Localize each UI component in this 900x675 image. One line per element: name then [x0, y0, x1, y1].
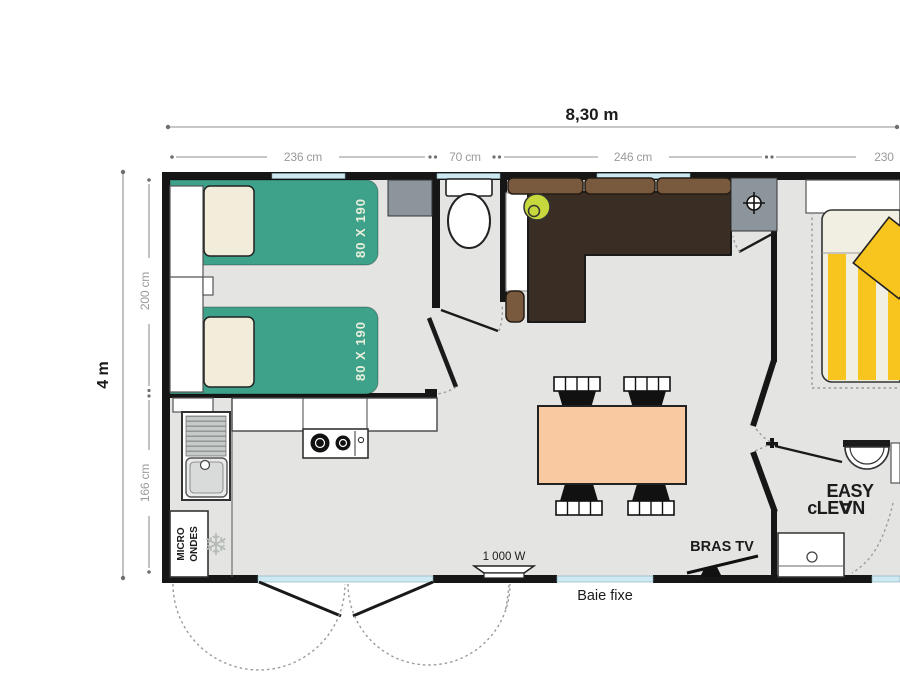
- kitchen-counter: [232, 398, 437, 431]
- dining-table: [538, 406, 686, 484]
- floorplan-page: 80 X 190 80 X 190: [0, 0, 900, 675]
- window-bathroom: [872, 576, 900, 582]
- pillow-1: [204, 186, 254, 256]
- dim-tick: [498, 155, 501, 158]
- easy-clean-logo-line2: cLE∀N: [807, 498, 864, 518]
- bedroom-cabinet: [388, 180, 432, 216]
- freezer-snowflake-icon: ❄: [203, 529, 228, 562]
- french-door-leaf-left: [259, 582, 341, 616]
- dim-label-166: 166 cm: [138, 464, 152, 502]
- dim-tick: [147, 394, 150, 397]
- wall-left: [162, 172, 170, 583]
- wall-bath-left: [771, 510, 777, 578]
- wall-bedroom-right: [432, 180, 440, 308]
- heater-dotted-line: [505, 585, 509, 612]
- door-jamb-bedroom: [425, 389, 437, 393]
- vanity-knob: [807, 552, 817, 562]
- dim-dot: [121, 170, 125, 174]
- sofa-cushion-3: [657, 178, 731, 194]
- window-baie-fixe: [557, 576, 653, 582]
- sofa-cushion-2: [585, 178, 655, 194]
- microwave-label-line2: ONDES: [189, 526, 200, 562]
- window-bedroom: [272, 174, 345, 179]
- wardrobe: [170, 186, 203, 392]
- dim-label-master: 230: [874, 150, 894, 164]
- baie-fixe-label: Baie fixe: [577, 588, 633, 604]
- dim-label-living: 246 cm: [614, 150, 652, 164]
- dim-tick: [765, 155, 768, 158]
- sofa-armrest: [506, 291, 524, 322]
- microwave-label-line1: MICRO: [176, 527, 187, 561]
- dim-tick: [147, 570, 151, 574]
- dim-label-wc: 70 cm: [449, 150, 481, 164]
- dim-tick: [428, 155, 431, 158]
- bed1-size-label: 80 X 190: [353, 198, 368, 258]
- sofa-cushion-1: [508, 178, 583, 194]
- dim-dot: [121, 576, 125, 580]
- window-french-door: [258, 576, 433, 582]
- total-width-label: 8,30 m: [566, 105, 619, 124]
- heater-base: [484, 573, 524, 578]
- wardrobe-notch: [203, 277, 213, 295]
- dim-tick: [147, 389, 150, 392]
- toilet-bowl: [448, 194, 490, 248]
- dim-label-200: 200 cm: [138, 272, 152, 310]
- door-jamb-bath: [766, 442, 778, 446]
- dim-line-left-segments: 200 cm 166 cm: [138, 178, 152, 574]
- dim-line-top-segments: 236 cm 70 cm 246 cm 230: [170, 150, 894, 164]
- bed2-size-label: 80 X 190: [353, 321, 368, 381]
- total-height-label: 4 m: [95, 361, 112, 389]
- dim-tick: [147, 178, 151, 182]
- dim-dot: [895, 125, 899, 129]
- dim-dot: [166, 125, 170, 129]
- door-swing-arc-left: [173, 584, 345, 670]
- headboard: [806, 180, 900, 213]
- dim-tick: [434, 155, 437, 158]
- french-door-leaf-right: [353, 582, 433, 616]
- window-wc: [437, 174, 500, 179]
- dim-tick: [492, 155, 495, 158]
- stripe: [828, 254, 846, 380]
- wall-master-left: [771, 230, 777, 362]
- heater: [474, 566, 534, 573]
- pillow-2: [204, 317, 254, 387]
- dim-label-bedroom: 236 cm: [284, 150, 322, 164]
- drainboard: [186, 416, 226, 456]
- bath-cabinet-right: [891, 443, 900, 483]
- burner-large: [311, 434, 330, 453]
- dim-tick: [170, 155, 174, 159]
- dim-tick: [770, 155, 773, 158]
- basin-backbar: [843, 440, 890, 447]
- floorplan-svg: 80 X 190 80 X 190: [0, 0, 900, 675]
- tv-bracket-label: BRAS TV: [690, 539, 754, 555]
- faucet: [201, 461, 210, 470]
- burner-small: [336, 436, 351, 451]
- kitchen-top-cabinet: [173, 398, 213, 412]
- door-swing-arc-right: [348, 584, 510, 665]
- heater-power-label: 1 000 W: [483, 551, 526, 563]
